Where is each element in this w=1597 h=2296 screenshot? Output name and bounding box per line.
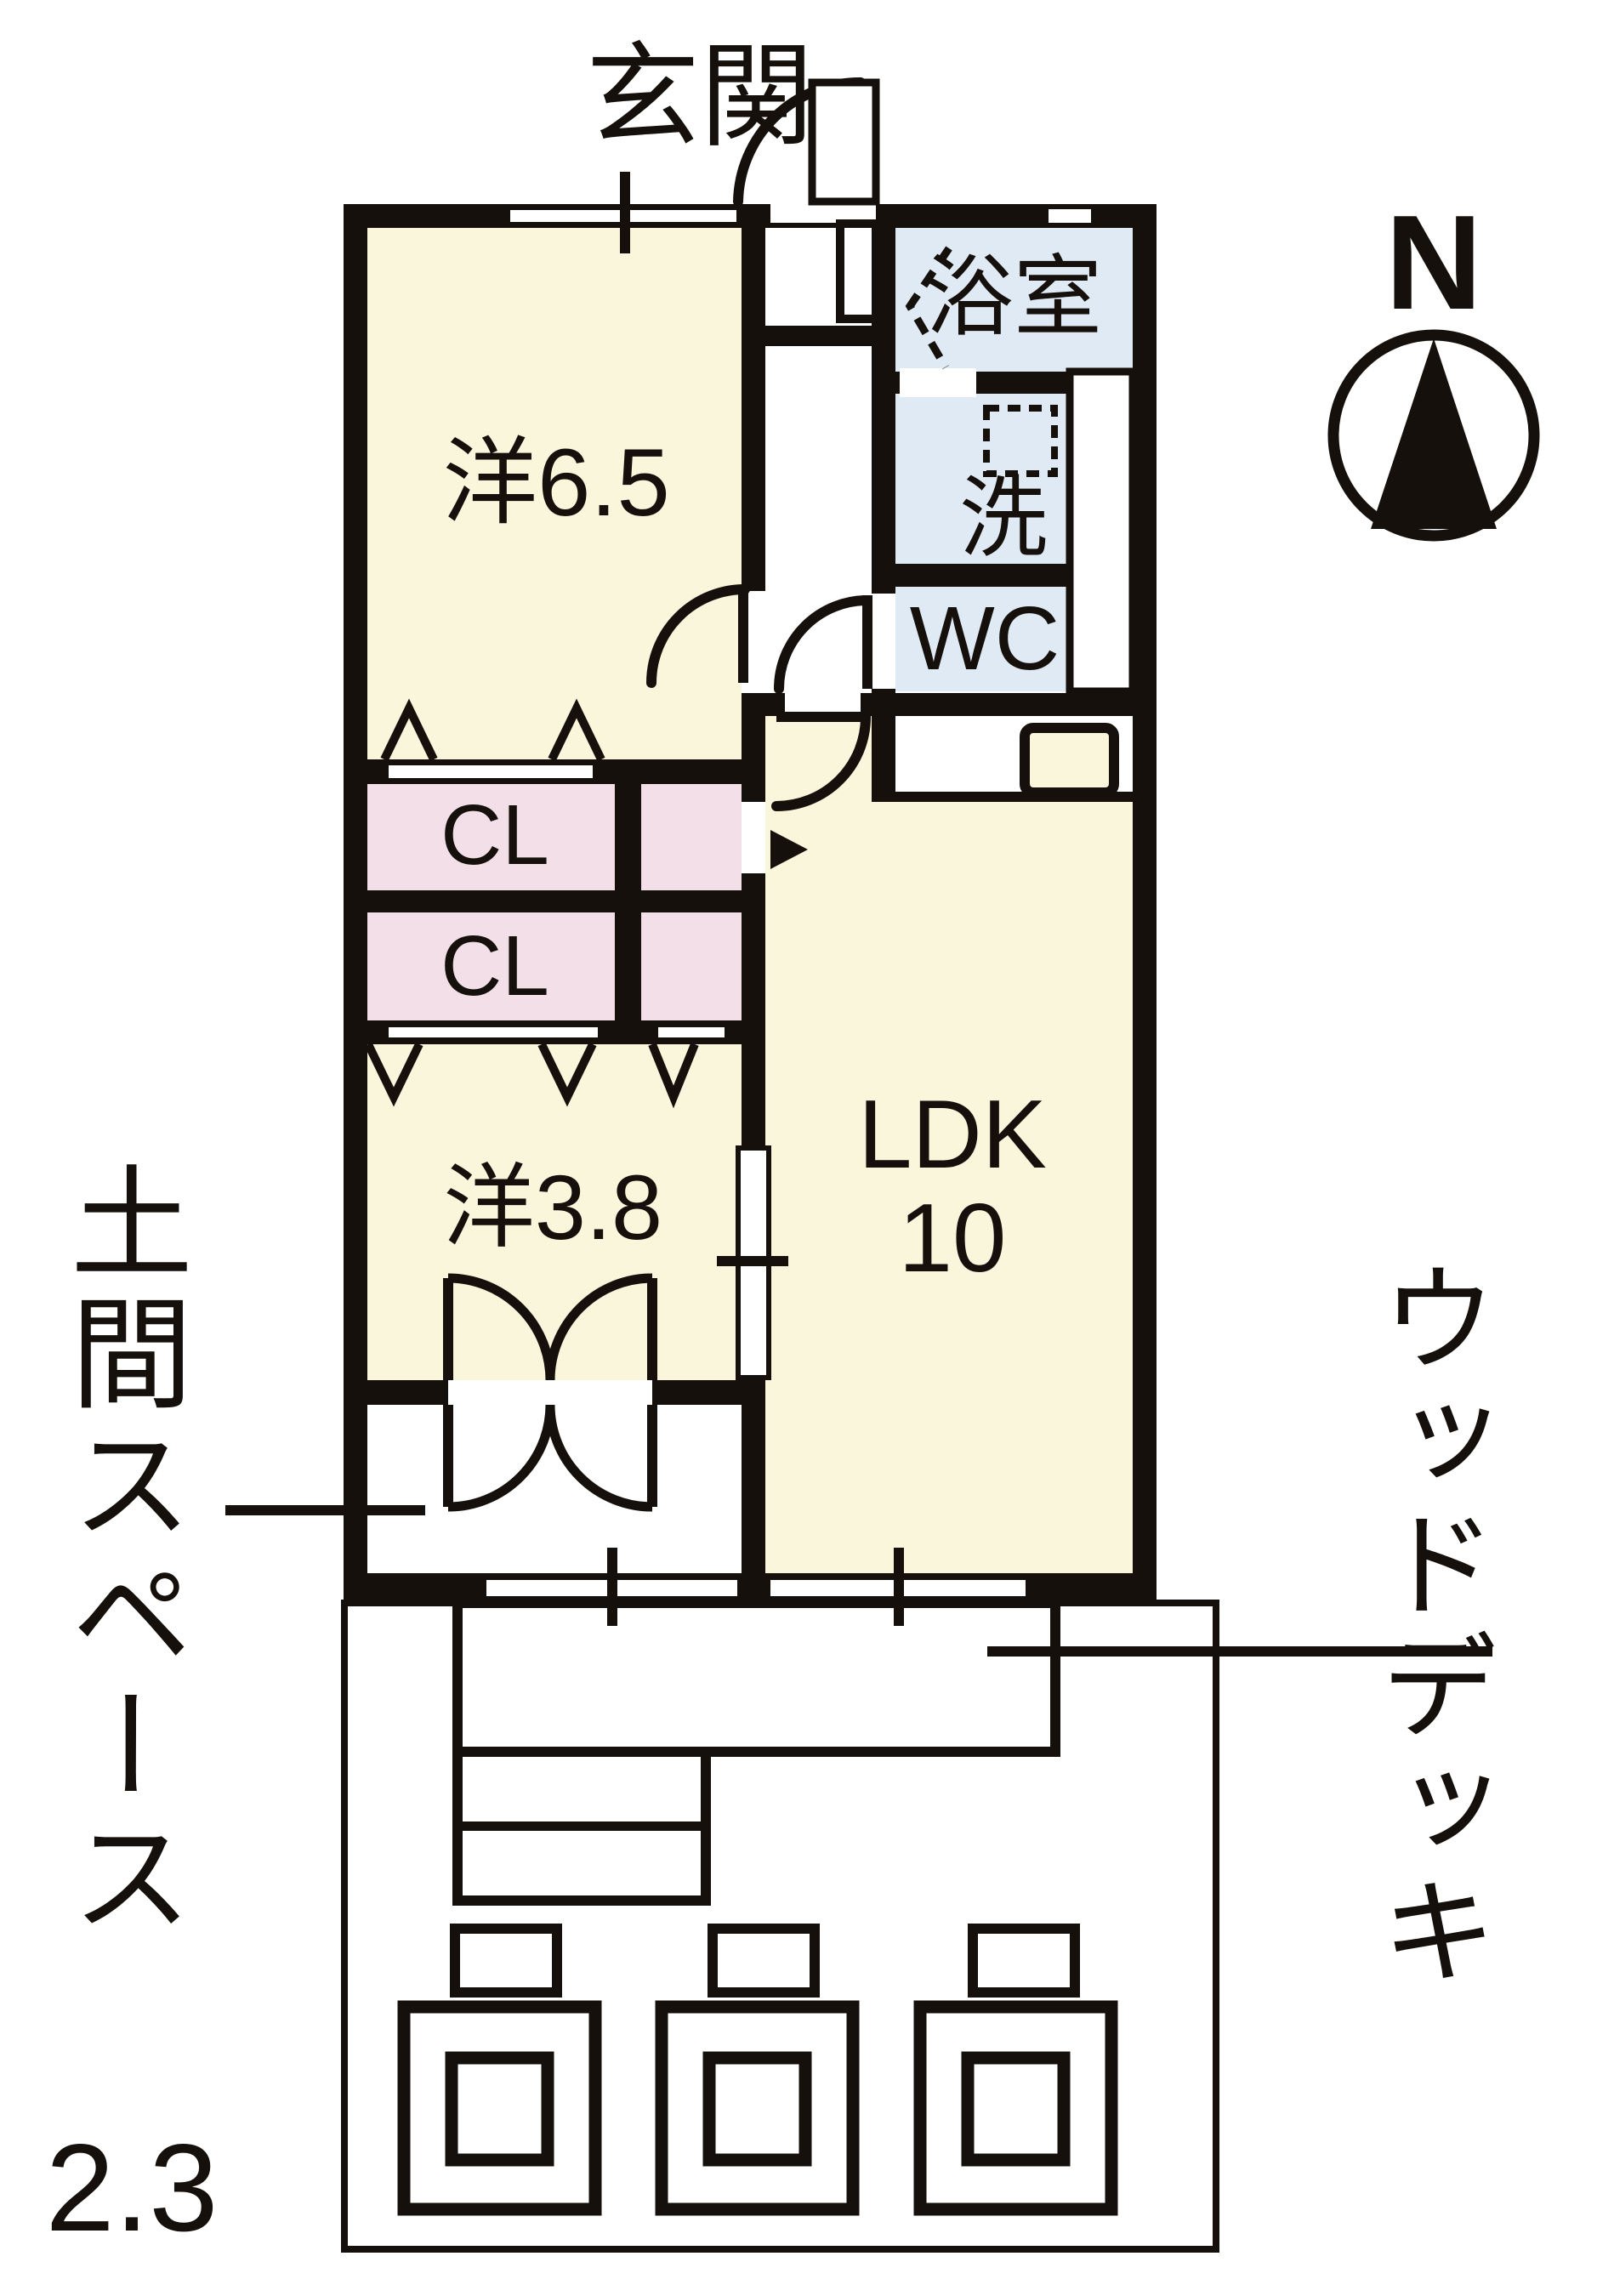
deck-vent <box>973 1929 1075 1992</box>
entrance-label: 玄関 <box>585 41 815 155</box>
entrance-step <box>765 326 872 346</box>
room-western-3-8-label: 洋3.8 <box>417 1162 689 1253</box>
pipe-space <box>1070 372 1133 691</box>
deck-vent <box>713 1929 815 1992</box>
closet-upper-right <box>641 784 742 890</box>
closet-door-upper <box>386 763 595 781</box>
room-ldk-size: 10 <box>833 1191 1071 1287</box>
doma-label: 土間スペース <box>60 1122 182 1981</box>
doma-leader-line <box>225 1505 425 1515</box>
deck-vent <box>455 1929 557 1992</box>
compass <box>1333 335 1534 536</box>
room-western-6-5-label: 洋6.5 <box>420 435 692 531</box>
closet-door-lower-right <box>656 1025 727 1040</box>
closet-lower-right <box>641 912 742 1020</box>
wood-deck-label: ウッドデッキ <box>1369 1243 1486 2009</box>
compass-north-label: N <box>1383 196 1485 330</box>
wood-deck <box>344 1603 1216 2249</box>
doma-size-label: 2.3 <box>34 2126 230 2250</box>
kitchen-sink-icon <box>1025 728 1114 793</box>
floor-plan-drawing <box>0 0 1597 2296</box>
closet-door-lower <box>386 1025 600 1040</box>
deck-porch <box>458 1603 1055 1752</box>
room-laundry-label: 洗 <box>957 475 1050 563</box>
entrance-door-leaf <box>812 82 876 202</box>
floor-plan-canvas: 玄関 洋6.5 浴室 洗 WC CL CL 洋3.8 LDK 10 土間スペース… <box>0 0 1597 2296</box>
room-toilet-label: WC <box>908 594 1061 684</box>
closet-upper-label: CL <box>435 793 554 878</box>
closet-lower-label: CL <box>435 924 554 1009</box>
room-ldk-label: LDK <box>833 1087 1071 1184</box>
room-bathroom-label: 浴室 <box>920 253 1107 342</box>
shoe-cabinet <box>840 224 876 319</box>
window-bathroom <box>1046 207 1094 225</box>
